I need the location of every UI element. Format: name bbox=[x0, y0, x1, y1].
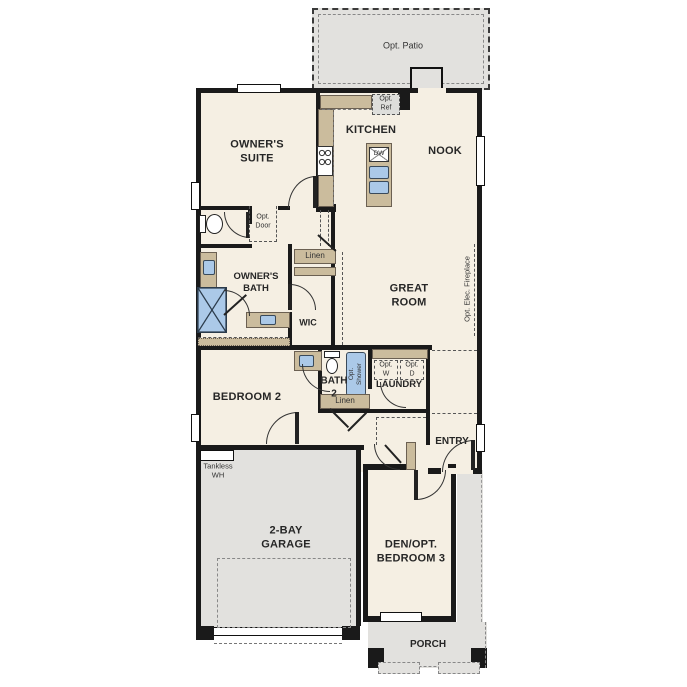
walkway-dashed-edge bbox=[481, 470, 482, 622]
bath-bench bbox=[198, 338, 290, 346]
wall-segment bbox=[451, 464, 456, 622]
wall-corner-post bbox=[342, 626, 360, 640]
label-owners-bath: OWNER'SBATH bbox=[233, 271, 278, 295]
label-kitchen: KITCHEN bbox=[346, 124, 396, 138]
wall-segment bbox=[196, 244, 252, 248]
label-owners-suite: OWNER'SSUITE bbox=[230, 138, 284, 166]
porch-dashed-edge bbox=[485, 622, 486, 668]
wall-segment bbox=[356, 450, 361, 626]
label-wic: WIC bbox=[299, 317, 317, 328]
label-porch: PORCH bbox=[410, 639, 446, 652]
window bbox=[237, 84, 281, 93]
label-opt-washer: Opt.W bbox=[379, 361, 392, 379]
toilet bbox=[324, 351, 340, 358]
label-great-room: GREATROOM bbox=[390, 282, 429, 310]
porch-step bbox=[438, 662, 480, 674]
kitchen-counter bbox=[320, 95, 372, 109]
window bbox=[380, 612, 422, 622]
patio-door-opening bbox=[418, 88, 446, 93]
wall-corner-post bbox=[196, 626, 214, 640]
cabinet-dashed bbox=[333, 112, 334, 205]
door-leaf bbox=[471, 440, 475, 470]
label-nook: NOOK bbox=[428, 145, 462, 159]
label-bedroom-2: BEDROOM 2 bbox=[213, 391, 281, 405]
door-leaf bbox=[295, 412, 299, 444]
label-opt-dryer: Opt.D bbox=[405, 361, 418, 379]
pantry-dashed bbox=[328, 210, 329, 246]
label-tankless-wh: TanklessWH bbox=[203, 462, 232, 481]
pantry-dashed bbox=[320, 210, 321, 246]
laundry-counter bbox=[372, 349, 428, 359]
window bbox=[191, 182, 200, 210]
cabinet-dashed bbox=[322, 109, 372, 110]
coat-closet bbox=[406, 442, 416, 470]
linen-shelf bbox=[294, 267, 336, 276]
label-linen-owners: Linen bbox=[305, 251, 325, 261]
porch-step bbox=[378, 662, 420, 674]
label-opt-door: Opt.Door bbox=[255, 213, 270, 231]
floor-plan: Opt. Patio OWNER'SSUITE KITCHEN NOOK Opt… bbox=[0, 0, 687, 687]
wall-segment bbox=[196, 206, 248, 210]
entry-dashed bbox=[376, 417, 377, 445]
cooktop bbox=[317, 146, 333, 176]
label-den: DEN/OPT.BEDROOM 3 bbox=[377, 538, 445, 566]
label-opt-patio: Opt. Patio bbox=[383, 40, 423, 51]
door-leaf bbox=[288, 284, 292, 310]
tankless-wh-box bbox=[200, 450, 234, 461]
label-dishwasher: DW bbox=[374, 150, 385, 158]
garage-door bbox=[214, 627, 342, 636]
patio-bumpout bbox=[410, 67, 443, 90]
cooktop-burners bbox=[318, 147, 332, 175]
toilet bbox=[199, 215, 206, 233]
label-entry: ENTRY bbox=[435, 436, 469, 449]
wall-segment bbox=[196, 450, 201, 640]
ceiling-break-dashed bbox=[432, 350, 477, 351]
door-leaf bbox=[246, 212, 249, 238]
door-leaf bbox=[414, 470, 418, 500]
island-sink bbox=[369, 181, 389, 194]
wall-segment bbox=[288, 244, 292, 288]
label-garage: 2-BAYGARAGE bbox=[261, 524, 310, 552]
window bbox=[476, 424, 485, 452]
window bbox=[476, 136, 485, 186]
fireplace-dashed bbox=[474, 244, 475, 336]
ceiling-break-dashed bbox=[432, 413, 477, 414]
label-linen-hall: Linen bbox=[335, 396, 355, 406]
label-laundry: LAUNDRY bbox=[376, 379, 422, 391]
toilet bbox=[206, 214, 223, 234]
label-opt-shower: Opt.Shower bbox=[348, 363, 364, 385]
garage-door-dashed bbox=[214, 643, 342, 644]
label-opt-elec-fireplace: Opt. Elec. Fireplace bbox=[462, 256, 471, 322]
wall-segment bbox=[331, 210, 335, 350]
island-sink bbox=[369, 166, 389, 179]
wic-dashed-edge bbox=[342, 252, 343, 345]
vanity-sink bbox=[203, 260, 215, 275]
window bbox=[191, 414, 200, 442]
walkway-area bbox=[457, 470, 483, 622]
garage-dashed-rect bbox=[217, 558, 351, 628]
wall-segment bbox=[372, 409, 430, 413]
door-leaf bbox=[313, 176, 317, 208]
vanity-sink bbox=[260, 315, 276, 325]
label-opt-ref: Opt.Ref bbox=[379, 95, 392, 113]
wall-segment bbox=[426, 411, 430, 445]
entry-dashed bbox=[376, 417, 426, 418]
shower bbox=[197, 287, 227, 333]
wall-segment bbox=[363, 464, 368, 622]
